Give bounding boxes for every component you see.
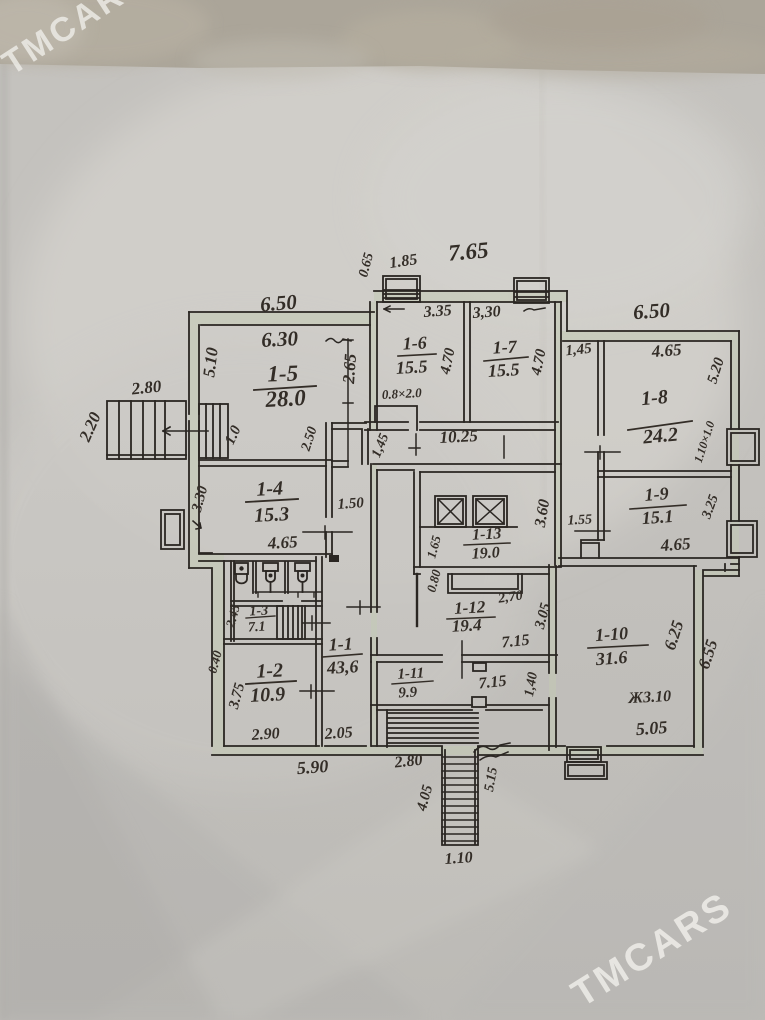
svg-text:2.05: 2.05 [323, 724, 353, 743]
svg-text:7.15: 7.15 [501, 632, 531, 652]
svg-text:4.65: 4.65 [650, 340, 682, 361]
svg-text:2.80: 2.80 [130, 376, 163, 398]
svg-text:Ж3.10: Ж3.10 [627, 688, 672, 707]
svg-text:19.0: 19.0 [471, 544, 500, 562]
svg-text:6.30: 6.30 [261, 326, 299, 352]
svg-text:5.05: 5.05 [635, 717, 668, 739]
svg-text:5.90: 5.90 [296, 756, 329, 778]
svg-text:1-12: 1-12 [454, 597, 487, 618]
svg-text:31.6: 31.6 [594, 647, 628, 669]
svg-text:1-1: 1-1 [328, 633, 353, 654]
svg-text:1-5: 1-5 [267, 360, 299, 386]
svg-text:6.50: 6.50 [259, 289, 298, 316]
svg-text:1,45: 1,45 [565, 341, 593, 360]
svg-text:19.4: 19.4 [451, 615, 482, 636]
svg-text:24.2: 24.2 [641, 424, 679, 449]
svg-text:10.25: 10.25 [439, 426, 479, 447]
svg-text:1-10: 1-10 [594, 623, 628, 645]
svg-text:2.80: 2.80 [393, 752, 424, 772]
svg-text:1-8: 1-8 [640, 386, 668, 410]
svg-text:1.55: 1.55 [567, 512, 592, 528]
svg-text:1.10: 1.10 [444, 849, 473, 868]
svg-text:15.3: 15.3 [254, 503, 290, 527]
svg-text:15.5: 15.5 [395, 356, 428, 378]
svg-text:7.15: 7.15 [478, 673, 508, 693]
svg-text:28.0: 28.0 [264, 385, 307, 412]
svg-text:43,6: 43,6 [325, 656, 359, 678]
svg-text:1-6: 1-6 [402, 332, 427, 353]
svg-text:3.35: 3.35 [422, 302, 452, 321]
svg-text:15.1: 15.1 [641, 506, 674, 528]
svg-text:1-7: 1-7 [492, 336, 518, 357]
svg-text:1-4: 1-4 [256, 477, 284, 500]
svg-text:10.9: 10.9 [250, 683, 286, 707]
svg-text:4.65: 4.65 [266, 532, 298, 553]
svg-text:2.65: 2.65 [339, 353, 360, 385]
svg-text:1-2: 1-2 [256, 659, 284, 682]
svg-text:15.5: 15.5 [487, 359, 520, 381]
svg-text:2.90: 2.90 [250, 725, 280, 744]
svg-text:1-9: 1-9 [644, 483, 669, 505]
svg-text:1.50: 1.50 [337, 495, 365, 513]
svg-text:1-13: 1-13 [472, 525, 502, 544]
svg-text:5.10: 5.10 [199, 346, 222, 378]
svg-text:6.50: 6.50 [632, 298, 671, 325]
svg-text:1-11: 1-11 [397, 665, 424, 682]
svg-text:4.65: 4.65 [659, 534, 691, 555]
svg-text:7.65: 7.65 [447, 237, 489, 265]
svg-text:7.1: 7.1 [248, 620, 266, 636]
svg-text:9.9: 9.9 [398, 684, 418, 701]
svg-text:0.8×2.0: 0.8×2.0 [381, 385, 422, 402]
svg-text:3,30: 3,30 [471, 303, 501, 322]
